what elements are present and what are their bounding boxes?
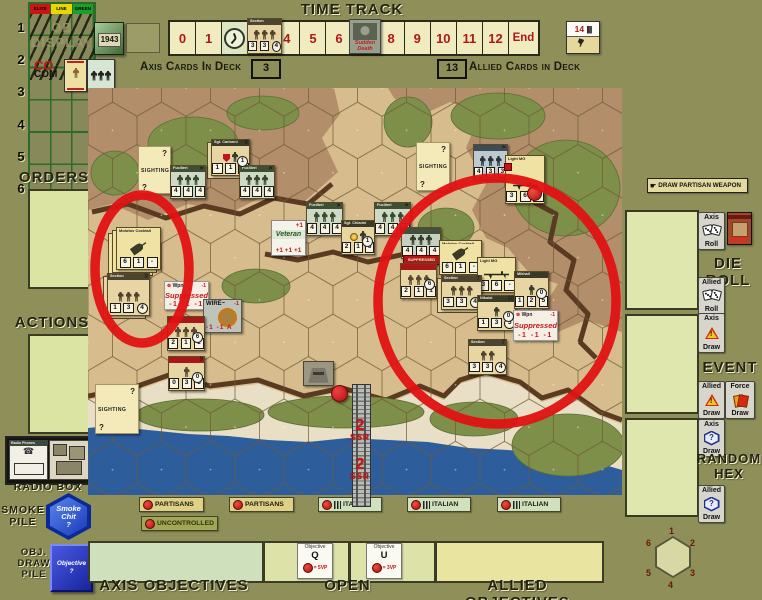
hex-question-icon: ? — [704, 431, 720, 446]
warning-triangle-icon: ! — [705, 394, 719, 406]
orders-card-box[interactable] — [28, 189, 92, 289]
compass-number: 3 — [690, 568, 695, 578]
unit-values: 444 — [171, 185, 205, 198]
ob-card[interactable] — [64, 59, 87, 92]
pier — [352, 384, 371, 507]
objective-card-u[interactable]: ObjectiveU= 3VP — [366, 543, 402, 579]
unit-wpn-light-mg[interactable]: Light MG36- — [477, 257, 516, 293]
unit-sec[interactable]: ⚑433 — [473, 144, 508, 180]
ob-header-elite: ELITE — [30, 4, 51, 14]
smoke-pile-label: SMOKEPILE — [0, 504, 46, 528]
red-control-disc-icon — [145, 519, 155, 529]
bottle-icon — [451, 244, 470, 260]
unit-wpn-molotov-cocktail[interactable]: Molotov Cocktail61- — [116, 227, 161, 270]
time-track-cell[interactable]: 12 — [483, 22, 509, 54]
unit-ldr-mikhail[interactable]: Mikhail1250 — [514, 271, 549, 309]
axis-deck-label: Axis Cards In Deck — [140, 61, 241, 73]
time-track-cell[interactable]: 9 — [405, 22, 431, 54]
shield-icon — [223, 154, 230, 162]
faction-button-partisans[interactable]: PARTISANS — [229, 497, 294, 512]
unit-figures — [402, 234, 440, 246]
compass-number: 5 — [646, 568, 651, 578]
hex-direction-compass: 123456 — [644, 528, 702, 588]
unit-values: 334 — [442, 296, 481, 310]
unit-sec[interactable]: 2116 — [400, 263, 437, 299]
faction-button-partisans[interactable]: PARTISANS — [139, 497, 204, 512]
allied-random-hex-button[interactable]: Allied ? Draw — [698, 485, 725, 523]
ob-co-label: COCOM — [34, 60, 57, 80]
unit-figures — [307, 209, 342, 223]
faction-button-italian[interactable]: ITALIAN — [497, 497, 561, 512]
compass-number: 2 — [690, 538, 695, 548]
unit-sighting[interactable]: ?SIGHTING? — [95, 384, 139, 434]
veteran-bonuses: +1 +1 +1 — [272, 247, 305, 255]
event-card-zone[interactable] — [625, 314, 699, 414]
medal-icon — [350, 233, 358, 241]
suppressed-top-row: ⊗ Wpn-1 — [165, 282, 208, 289]
unit-values: 334 — [248, 40, 281, 54]
event-label: EVENT — [700, 359, 760, 376]
sudden-death-art — [353, 23, 377, 40]
ob-ghost-title: OBDISPLAY — [30, 20, 94, 50]
suppressed-word: Suppressed — [514, 321, 557, 330]
red-square-marker — [504, 163, 512, 171]
unit-sighting[interactable]: ?SIGHTING? — [416, 142, 450, 191]
weapon-values: 36- — [478, 279, 515, 292]
weapon-icon-row — [478, 264, 515, 279]
time-track-cell[interactable]: 5 — [300, 22, 326, 54]
vp-row: = 5VP — [303, 563, 328, 573]
suppressed-penalties: -1 -1 -1 — [514, 332, 557, 340]
unit-sec-fucilieri[interactable]: ⚑Fucilieri444 — [306, 202, 343, 236]
compass-number: 4 — [668, 580, 673, 590]
faction-button-uncontrolled[interactable]: UNCONTROLLED — [141, 516, 218, 531]
ob-row-number: 2 — [14, 52, 28, 67]
ob-row-number: 1 — [14, 20, 28, 35]
unit-wpn-molotov-cocktail[interactable]: Molotov Cocktail61- — [439, 240, 482, 275]
red-control-disc-icon — [233, 500, 243, 510]
sudden-death-label: SuddenDeath — [350, 40, 380, 52]
unit-disc[interactable] — [331, 385, 348, 402]
unit-sec-fucilieri[interactable]: ⚑Fucilieri444 — [170, 165, 206, 199]
game-window: ELITE LINE GREEN OBDISPLAY COCOM 123456 … — [0, 0, 762, 600]
unit-sec-section[interactable]: 7Section334 — [441, 275, 482, 310]
allied-objectives-label: ALLIED OBJECTIVES — [435, 577, 600, 600]
objective-card-q[interactable]: ObjectiveQ= 5VP — [297, 543, 333, 579]
unit-sec-section[interactable]: 7Section334 — [468, 339, 507, 375]
phone-icon: ☎ — [10, 446, 47, 457]
compass-number: 1 — [669, 526, 674, 536]
unit-wpn-light-mg[interactable]: Light MG36 — [505, 155, 545, 204]
suppressed-top-row: ⊗ Wpn-1 — [514, 311, 557, 318]
compass-number: 6 — [646, 538, 651, 548]
axis-objectives-label: AXIS OBJECTIVES — [88, 577, 260, 594]
ob-header-green: GREEN — [73, 4, 94, 14]
unit-sec-section[interactable]: 9Section134 — [107, 273, 150, 316]
axis-event-draw-button[interactable]: Axis ! Draw — [698, 313, 725, 353]
unit-wire[interactable]: WIRE~-1-1 -1 A — [203, 299, 242, 333]
time-track-cell[interactable]: 1 — [196, 22, 222, 54]
unit-values: 433 — [474, 166, 507, 179]
vp-row: = 3VP — [372, 563, 397, 573]
unit-figures — [375, 209, 410, 223]
faction-button-italian[interactable]: ITALIAN — [318, 497, 382, 512]
weapon-icon-row — [440, 244, 481, 261]
red-vp-disc-icon — [372, 563, 382, 573]
unit-pill[interactable] — [303, 361, 334, 386]
unit-sec[interactable]: 90330 — [168, 356, 205, 391]
unit-sup[interactable]: ⊗ Wpn-1Suppressed-1 -1 -1 — [513, 310, 558, 341]
weapon-icon-row — [117, 234, 160, 256]
dice-icon — [703, 225, 721, 237]
ob-header-line: LINE — [51, 4, 72, 14]
unit-figures — [248, 25, 281, 40]
unit-ldr-sgt-chiarini[interactable]: Sgt. Chiarini2161 — [341, 220, 375, 255]
time-track-cell[interactable]: 0 — [170, 22, 196, 54]
time-track-title: TIME TRACK — [168, 1, 536, 18]
red-vp-disc-icon — [303, 563, 313, 573]
ob-row-number: 4 — [14, 117, 28, 132]
bottle-icon — [129, 239, 148, 255]
weapon-values: 61- — [117, 256, 160, 269]
random-hex-card-zone[interactable] — [625, 418, 699, 517]
ob-row-number: 3 — [14, 84, 28, 99]
force-draw-button[interactable]: Force Draw — [725, 381, 755, 419]
actions-label: ACTIONS — [12, 314, 92, 331]
radio-phones-card[interactable]: Radio Phones ☎ — [9, 440, 48, 480]
unit-figures — [469, 346, 506, 361]
die-roll-card-zone[interactable] — [625, 210, 699, 310]
time-track-cell[interactable]: 11 — [457, 22, 483, 54]
axis-die-card[interactable] — [727, 212, 752, 245]
random-hex-label: RANDOMHEX — [696, 451, 762, 481]
year-card[interactable]: 1943 — [94, 22, 124, 55]
hex-question-icon: ? — [704, 497, 720, 512]
hand-pointer-icon: ☛ — [572, 35, 588, 49]
allied-deck-count: 13 — [437, 59, 467, 79]
draw-partisan-weapon-button[interactable]: ☛ DRAW PARTISAN WEAPON — [647, 178, 748, 193]
pillbox-face — [308, 368, 328, 383]
ssr-marker: 2SSR — [342, 457, 378, 481]
red-disc-marker — [527, 186, 542, 201]
ob-row-number: 5 — [14, 149, 28, 164]
unit-values: 334 — [469, 361, 506, 375]
allied-roll-button[interactable]: Allied Roll — [698, 277, 725, 315]
tally-icon — [334, 501, 341, 509]
allied-event-draw-button[interactable]: Allied ! Draw — [698, 381, 725, 419]
pillbox-slit — [313, 372, 325, 375]
unit-ldr-nikolai[interactable]: 10Nikolai1350 — [477, 295, 516, 331]
red-control-disc-icon — [322, 500, 332, 510]
unit-sec[interactable]: 2116 — [167, 316, 205, 351]
objective-chit-pile[interactable]: Objective? — [50, 544, 93, 592]
unit-figures — [171, 172, 205, 186]
unit-figures — [442, 282, 481, 296]
time-track-cell[interactable]: 10 — [431, 22, 457, 54]
red-control-disc-icon — [143, 500, 153, 510]
axis-roll-button[interactable]: Axis Roll — [698, 212, 725, 250]
hand-size-card[interactable]: 14 |||| ☛ — [566, 21, 600, 54]
time-track-cell[interactable]: End — [509, 22, 538, 54]
unit-figures — [474, 151, 507, 167]
axis-deck-count: 3 — [251, 59, 281, 79]
radio-box[interactable]: Radio Phones ☎ — [5, 436, 92, 485]
warning-triangle-icon: ! — [705, 327, 719, 339]
pistol-icon: ☛ — [650, 182, 656, 190]
veteran-band: Veteran — [272, 230, 305, 239]
cards-icon — [734, 395, 747, 406]
unit-figures — [240, 172, 274, 186]
mg-icon — [484, 270, 509, 279]
radio-box-label: RADIO BOX — [8, 481, 88, 493]
suppressed-penalties: -1 -1 -1 — [165, 301, 208, 309]
ssr-marker: 2SSR — [342, 418, 378, 442]
weapon-values: 61- — [440, 261, 481, 274]
unit-values: 444 — [307, 222, 342, 235]
red-control-disc-icon — [411, 500, 421, 510]
unit-vet[interactable]: +1Veteran+1 +1 +1 — [271, 220, 306, 256]
unit-sighting[interactable]: ?SIGHTING? — [138, 146, 171, 194]
ob-headers: ELITE LINE GREEN — [30, 4, 94, 14]
unit-values: 444 — [240, 185, 274, 198]
unit-sec-section[interactable]: Section334 — [247, 18, 282, 54]
orders-label: ORDERS — [16, 169, 92, 186]
unit-figures — [108, 280, 149, 302]
dice-icon — [703, 290, 721, 302]
open-label: OPEN — [263, 577, 432, 594]
tally-icon — [423, 501, 430, 509]
unit-sec-fucilieri[interactable]: ⚑Fucilieri444 — [239, 165, 275, 199]
actions-card-box[interactable] — [28, 334, 92, 434]
suppressed-word: Suppressed — [165, 291, 208, 300]
time-track-cell[interactable]: 8 — [379, 22, 405, 54]
faction-button-italian[interactable]: ITALIAN — [407, 497, 471, 512]
allied-deck-label: Allied Cards in Deck — [469, 61, 580, 73]
clock-marker-icon — [224, 28, 245, 49]
empty-card-slot[interactable] — [126, 23, 160, 53]
unit-sd[interactable]: SuddenDeath — [349, 19, 381, 54]
tally-icon — [513, 501, 520, 509]
unit-values: 134 — [108, 302, 149, 316]
time-track-cell[interactable] — [222, 22, 248, 54]
radio-gear-card[interactable] — [49, 440, 89, 480]
smoke-chit-pile[interactable]: SmokeChit? — [46, 493, 91, 540]
red-control-disc-icon — [501, 500, 511, 510]
